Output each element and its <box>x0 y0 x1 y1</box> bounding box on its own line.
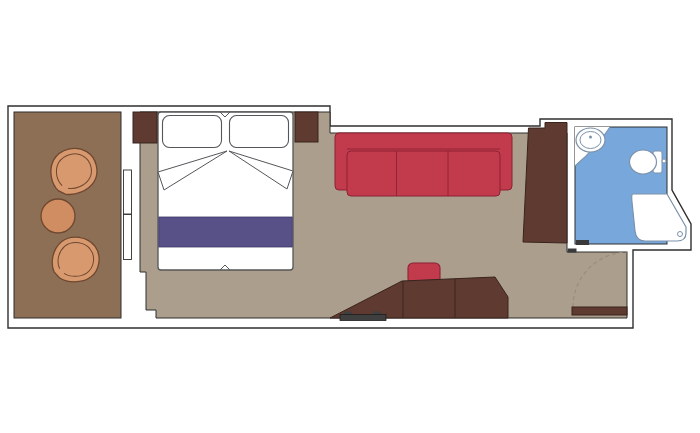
toilet <box>630 150 667 174</box>
round-table <box>41 199 75 233</box>
nightstand-left <box>133 112 157 143</box>
floor-plan <box>0 0 700 433</box>
door-leaf <box>572 307 627 315</box>
sliding-balcony-door <box>124 170 132 260</box>
washbasin <box>576 128 605 152</box>
bathroom-door-mark <box>576 240 589 245</box>
pillow-right <box>230 116 289 148</box>
faucet-icon <box>589 136 592 139</box>
sofa-cushions <box>347 151 500 196</box>
flush-button-icon <box>662 159 666 163</box>
wardrobe <box>523 123 567 244</box>
nightstand-right <box>295 112 318 142</box>
bathroom-door-mark-2 <box>568 249 577 253</box>
three-seat-sofa <box>335 133 512 196</box>
bed-runner <box>159 217 292 247</box>
double-bed <box>158 112 293 270</box>
shower-drain-icon <box>678 232 683 237</box>
pillow-left <box>163 116 222 148</box>
